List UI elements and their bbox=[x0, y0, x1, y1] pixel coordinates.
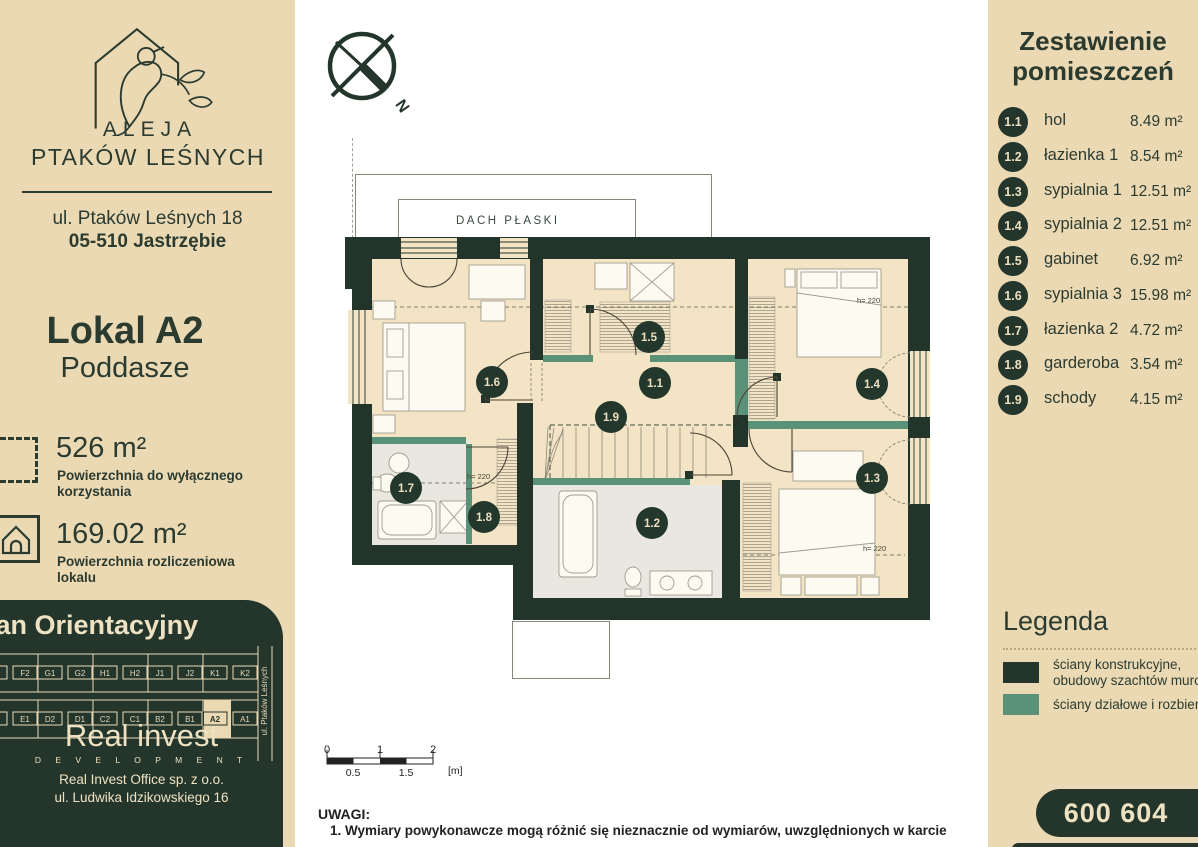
area-billing-label: Powierzchnia rozliczeniowa lokalu bbox=[57, 554, 257, 586]
floor-plan: h= 220 h= 220 h= 220 1.6 1.5 1.1 1.9 1.4… bbox=[345, 237, 935, 627]
svg-text:1.6: 1.6 bbox=[484, 377, 500, 389]
scale-bar: 0 1 2 0.5 1.5 [m] bbox=[320, 742, 480, 784]
room-number-badge: 1.9 bbox=[998, 385, 1028, 415]
svg-text:1.4: 1.4 bbox=[864, 379, 881, 391]
notes-line-1: 1. Wymiary powykonawcze mogą różnić się … bbox=[330, 823, 947, 838]
room-number-badge: 1.7 bbox=[998, 316, 1028, 346]
roof-dashed-line bbox=[352, 138, 353, 238]
north-compass-icon: N bbox=[320, 20, 420, 120]
logo-leaf-1 bbox=[180, 71, 204, 83]
scale-tick-15: 1.5 bbox=[399, 767, 414, 779]
floorplan-flyer: { "brand": { "line1": "ALEJA", "line2": … bbox=[0, 0, 1198, 847]
area-billing-value: 169.02 m² bbox=[56, 518, 187, 551]
room-badge-1-4: 1.4 bbox=[856, 368, 888, 400]
room-row-1-5: 1.5 gabinet 6.92 m² bbox=[998, 246, 1198, 276]
room-badge-1-2: 1.2 bbox=[636, 507, 668, 539]
room-name: sypialnia 1 bbox=[1044, 181, 1122, 200]
brand-address-street: ul. Ptaków Leśnych 18 bbox=[0, 208, 295, 230]
room-area: 4.15 m² bbox=[1130, 391, 1183, 409]
area-exclusive-value: 526 m² bbox=[56, 432, 146, 465]
svg-text:J2: J2 bbox=[186, 669, 195, 678]
room-row-1-2: 1.2 łazienka 1 8.54 m² bbox=[998, 142, 1198, 172]
room-number-badge: 1.6 bbox=[998, 281, 1028, 311]
legend-partition-label: ściany działowe i rozbieralne bbox=[1053, 697, 1198, 712]
house-area-icon bbox=[0, 515, 40, 563]
room-number-badge: 1.4 bbox=[998, 211, 1028, 241]
north-label: N bbox=[391, 97, 412, 116]
room-name: sypialnia 2 bbox=[1044, 215, 1122, 234]
left-sidebar: ALEJA PTAKÓW LEŚNYCH ul. Ptaków Leśnych … bbox=[0, 0, 295, 847]
brand-name-line1: ALEJA bbox=[75, 118, 225, 142]
room-area: 8.49 m² bbox=[1130, 113, 1183, 131]
unit-title: Lokal A2 bbox=[0, 310, 250, 353]
bottom-dark-strip bbox=[1012, 843, 1198, 847]
room-number-badge: 1.5 bbox=[998, 246, 1028, 276]
room-area: 4.72 m² bbox=[1130, 322, 1183, 340]
rooms-table-title: Zestawienie pomieszczeń bbox=[988, 26, 1198, 86]
room-area: 3.54 m² bbox=[1130, 356, 1183, 374]
room-area: 6.92 m² bbox=[1130, 252, 1183, 270]
room-row-1-7: 1.7 łazienka 2 4.72 m² bbox=[998, 316, 1198, 346]
room-area: 8.54 m² bbox=[1130, 148, 1183, 166]
scale-unit: [m] bbox=[448, 765, 463, 777]
svg-text:1.7: 1.7 bbox=[398, 483, 414, 495]
room-number-badge: 1.3 bbox=[998, 177, 1028, 207]
legend-structural-line1: ściany konstrukcyjne, bbox=[1053, 657, 1181, 672]
area-exclusive-label: Powierzchnia do wyłącznego korzystania bbox=[57, 468, 252, 500]
developer-name: Real invest bbox=[65, 718, 218, 753]
room-badge-1-3: 1.3 bbox=[856, 462, 888, 494]
room-badge-1-7: 1.7 bbox=[390, 472, 422, 504]
site-labels: F1F2 G1G2 H1H2 J1J2 K1K2 E2E1 D2D1 C2C1 … bbox=[0, 666, 257, 725]
roof-outline-lower bbox=[512, 621, 610, 679]
svg-text:G1: G1 bbox=[45, 669, 56, 678]
developer-office-line1: Real Invest Office sp. z o.o. bbox=[0, 772, 283, 787]
room-badge-1-9: 1.9 bbox=[595, 401, 627, 433]
rooms-title-line2: pomieszczeń bbox=[988, 56, 1198, 86]
flat-roof-label: DACH PŁASKI bbox=[452, 215, 564, 227]
room-area: 15.98 m² bbox=[1130, 287, 1191, 305]
legend-structural-line2: obudowy szachtów murowanych bbox=[1053, 673, 1198, 688]
svg-text:1.8: 1.8 bbox=[476, 512, 493, 524]
room-name: sypialnia 3 bbox=[1044, 285, 1122, 304]
room-name: gabinet bbox=[1044, 250, 1098, 269]
room-name: schody bbox=[1044, 389, 1096, 408]
developer-office-line2: ul. Ludwika Idzikowskiego 16 bbox=[0, 790, 283, 805]
brand-name-line2: PTAKÓW LEŚNYCH bbox=[8, 144, 288, 171]
house-glyph bbox=[0, 518, 37, 560]
legend-title: Legenda bbox=[1003, 606, 1108, 637]
room-badge-1-8: 1.8 bbox=[468, 501, 500, 533]
room-row-1-1: 1.1 hol 8.49 m² bbox=[998, 107, 1198, 137]
phone-button[interactable]: 600 604 604 bbox=[1036, 789, 1198, 837]
room-row-1-3: 1.3 sypialnia 1 12.51 m² bbox=[998, 177, 1198, 207]
svg-text:1.9: 1.9 bbox=[603, 412, 619, 424]
room-row-1-4: 1.4 sypialnia 2 12.51 m² bbox=[998, 211, 1198, 241]
notes-heading: UWAGI: bbox=[318, 806, 370, 822]
room-area: 12.51 m² bbox=[1130, 183, 1191, 201]
legend-divider bbox=[1003, 648, 1198, 650]
svg-text:1.2: 1.2 bbox=[644, 518, 660, 530]
scale-tick-05: 0.5 bbox=[346, 767, 361, 779]
svg-text:h= 220: h= 220 bbox=[863, 544, 886, 553]
room-row-1-6: 1.6 sypialnia 3 15.98 m² bbox=[998, 281, 1198, 311]
rooms-title-line1: Zestawienie bbox=[988, 26, 1198, 56]
orientation-panel: Plan Orientacyjny bbox=[0, 600, 283, 847]
unit-subtitle: Poddasze bbox=[0, 352, 250, 385]
svg-text:J1: J1 bbox=[156, 669, 165, 678]
room-number-badge: 1.2 bbox=[998, 142, 1028, 172]
svg-text:1.5: 1.5 bbox=[641, 332, 658, 344]
orientation-title: Plan Orientacyjny bbox=[0, 610, 198, 641]
legend-swatch-partition bbox=[1003, 694, 1039, 715]
room-badge-1-1: 1.1 bbox=[639, 367, 671, 399]
logo-leaf-2 bbox=[189, 97, 211, 107]
brand-divider bbox=[22, 191, 272, 193]
room-name: garderoba bbox=[1044, 354, 1119, 373]
room-name: hol bbox=[1044, 111, 1066, 130]
room-number-badge: 1.8 bbox=[998, 350, 1028, 380]
logo-house-outline bbox=[96, 29, 178, 128]
room-badge-1-5: 1.5 bbox=[633, 321, 665, 353]
svg-text:F2: F2 bbox=[20, 669, 30, 678]
logo-bird-body bbox=[121, 62, 161, 127]
brand-address-city: 05-510 Jastrzębie bbox=[0, 231, 295, 253]
svg-text:H2: H2 bbox=[130, 669, 141, 678]
svg-text:H1: H1 bbox=[100, 669, 111, 678]
svg-text:G2: G2 bbox=[75, 669, 86, 678]
developer-logo: Real invest bbox=[0, 718, 283, 754]
room-name: łazienka 1 bbox=[1044, 146, 1118, 165]
logo-branch bbox=[161, 74, 189, 95]
dashed-area-icon bbox=[0, 437, 38, 483]
room-name: łazienka 2 bbox=[1044, 320, 1118, 339]
svg-text:h= 220: h= 220 bbox=[467, 472, 490, 481]
room-number-badge: 1.1 bbox=[998, 107, 1028, 137]
room-row-1-9: 1.9 schody 4.15 m² bbox=[998, 385, 1198, 415]
svg-text:K2: K2 bbox=[240, 669, 250, 678]
svg-text:1.1: 1.1 bbox=[647, 378, 664, 390]
developer-tagline: D E V E L O P M E N T bbox=[0, 755, 283, 765]
svg-text:1.3: 1.3 bbox=[864, 473, 880, 485]
svg-text:h= 220: h= 220 bbox=[857, 296, 880, 305]
svg-text:K1: K1 bbox=[210, 669, 220, 678]
legend-swatch-structural bbox=[1003, 662, 1039, 683]
room-area: 12.51 m² bbox=[1130, 217, 1191, 235]
room-row-1-8: 1.8 garderoba 3.54 m² bbox=[998, 350, 1198, 380]
room-badge-1-6: 1.6 bbox=[476, 366, 508, 398]
